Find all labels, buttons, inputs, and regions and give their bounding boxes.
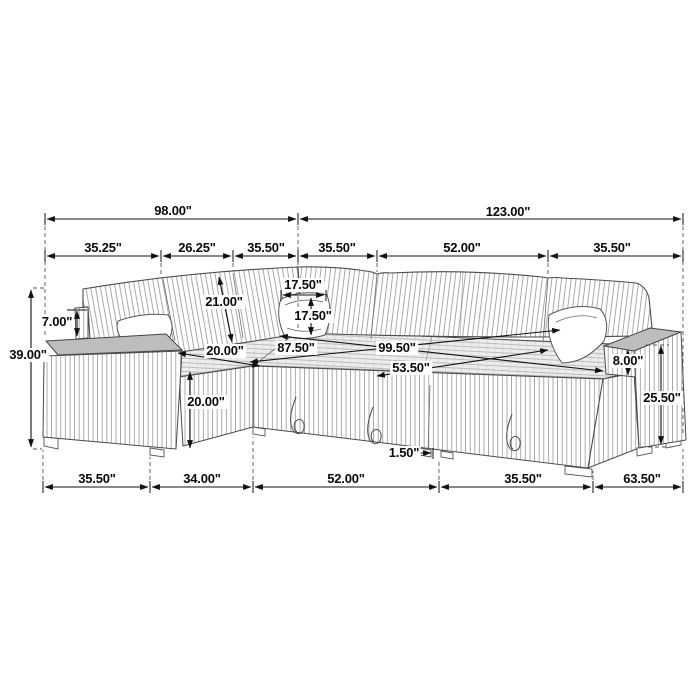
sofa-drawing	[43, 267, 686, 477]
dimension-diagram: 98.00" 123.00" 35.25" 26.25" 35.50" 35.5…	[0, 0, 700, 700]
dim-top-seg-1: 35.25"	[84, 241, 122, 255]
dim-bottom-seg-1: 35.50"	[78, 472, 116, 486]
dim-pillow-height: 17.50"	[292, 309, 334, 323]
dim-diagonal-mid: 87.50"	[275, 341, 317, 355]
dim-top-seg-5: 52.00"	[443, 241, 481, 255]
dim-seat-width: 20.00"	[204, 344, 246, 358]
dim-chaise-height: 20.00"	[185, 395, 227, 409]
dim-pillow-width: 17.50"	[282, 278, 324, 292]
dim-side-height: 25.50"	[641, 391, 683, 405]
dim-top-seg-2: 26.25"	[178, 241, 216, 255]
dim-back-ledge: 7.00"	[40, 315, 74, 329]
dim-backrest-length: 21.00"	[203, 295, 245, 309]
dim-module-gap: 1.50"	[387, 446, 421, 460]
sofa-line-art	[0, 0, 700, 700]
dim-overall-height: 39.00"	[7, 348, 49, 362]
dim-overall-left-width: 98.00"	[154, 204, 192, 218]
dim-bottom-seg-3: 52.00"	[327, 472, 365, 486]
dim-armrest-height: 8.00"	[611, 354, 645, 368]
dim-top-seg-6: 35.50"	[593, 241, 631, 255]
dim-top-seg-4: 35.50"	[318, 241, 356, 255]
left-arm-face	[43, 351, 182, 449]
dim-bottom-seg-4: 35.50"	[504, 472, 542, 486]
dim-bottom-seg-5: 63.50"	[623, 472, 661, 486]
dim-bottom-seg-2: 34.00"	[183, 472, 221, 486]
dim-diagonal-short: 53.50"	[390, 361, 432, 375]
dim-overall-right-width: 123.00"	[486, 205, 531, 219]
dim-top-seg-3: 35.50"	[247, 241, 285, 255]
dim-diagonal-long: 99.50"	[376, 341, 418, 355]
